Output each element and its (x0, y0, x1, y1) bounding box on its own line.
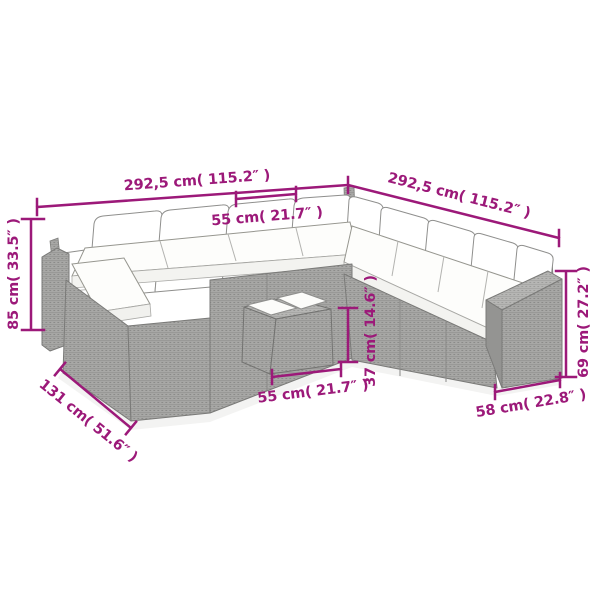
dim-label-armrest-height: 69 cm( 27.2″ ) (576, 266, 592, 378)
sofa-set-illustration (0, 0, 600, 600)
dim-label-table-height: 37 cm( 14.6″ ) (363, 275, 379, 387)
corner-module-front-face (128, 318, 210, 421)
dim-label-backrest-height: 85 cm( 33.5″ ) (6, 218, 22, 330)
table-front-face (270, 309, 333, 374)
dimension-diagram: 292,5 cm( 115.2″ ) 292,5 cm( 115.2″ ) 55… (0, 0, 600, 600)
dim-line-backrest-height (22, 219, 44, 330)
